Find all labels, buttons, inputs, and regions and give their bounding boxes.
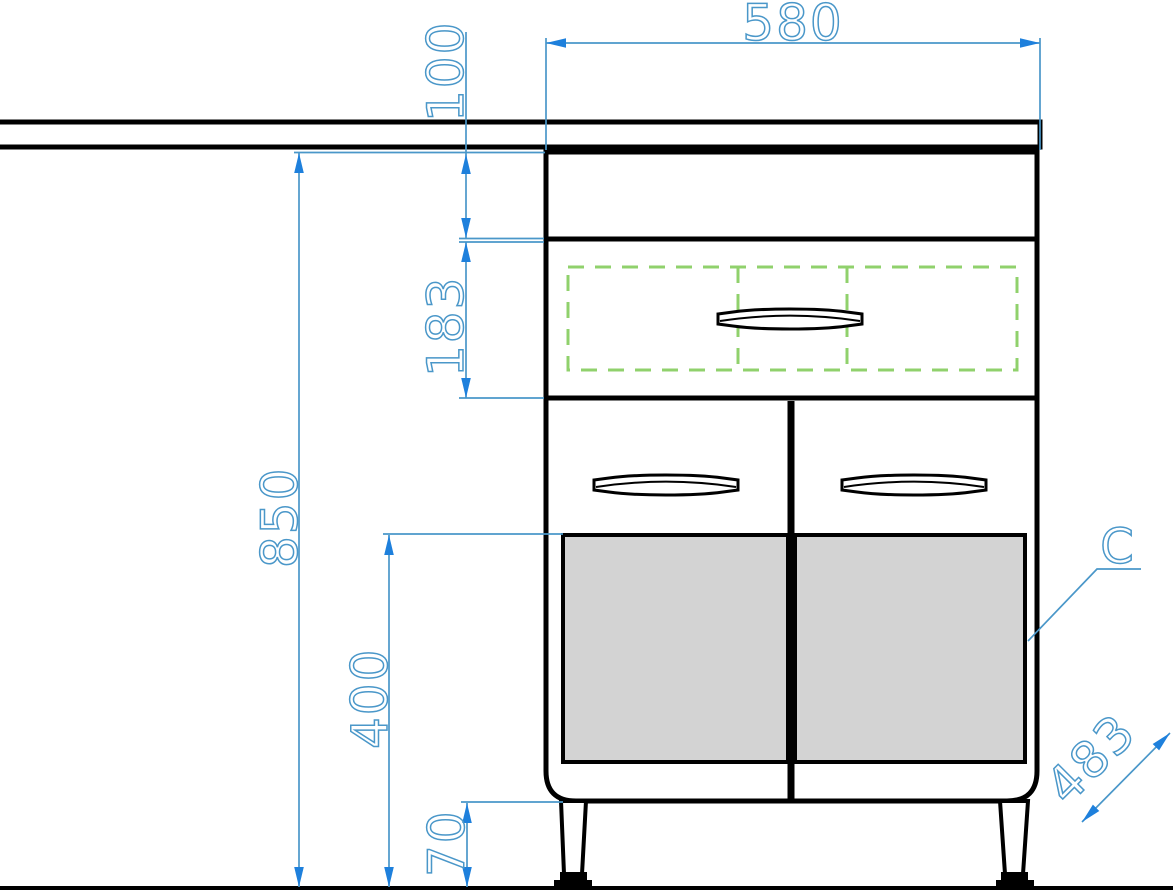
right-door-panel: [795, 535, 1025, 762]
right-door-handle: [842, 475, 986, 495]
drawer-handle: [718, 309, 862, 329]
dim-483-value: 483: [1035, 703, 1148, 816]
cabinet-elevation-drawing: 580 100 183 850 400 70: [0, 0, 1173, 895]
dim-183-value: 183: [417, 276, 475, 377]
dim-400-arrow-up: [384, 535, 394, 555]
dimension-overall-height-850: 850: [251, 153, 309, 887]
dim-70-value: 70: [418, 809, 476, 877]
technical-drawing-canvas: 580 100 183 850 400 70: [0, 0, 1173, 895]
left-leg: [561, 801, 586, 874]
right-foot-upper: [1001, 872, 1028, 880]
dim-580-value: 580: [742, 0, 843, 52]
dim-100-arrow-down: [461, 218, 471, 238]
dim-580-arrow-right: [1020, 38, 1040, 48]
dim-183-arrow-down: [461, 378, 471, 398]
left-door-handle: [594, 475, 738, 495]
left-foot-upper: [560, 872, 587, 880]
dim-100-value: 100: [417, 21, 475, 122]
dim-100-arrow-up: [461, 154, 471, 174]
dim-400-arrow-down: [384, 867, 394, 887]
dim-183-arrow-up: [461, 242, 471, 262]
dimension-drawer-183: 183: [417, 242, 544, 398]
label-c-text: C: [1100, 519, 1134, 575]
dimension-leg-70: 70: [418, 802, 563, 887]
dimension-depth-483: 483: [1035, 703, 1170, 822]
section-label-c: C: [1028, 519, 1141, 641]
dim-400-value: 400: [341, 648, 399, 749]
dim-850-value: 850: [251, 467, 309, 568]
countertop: [0, 122, 1040, 147]
right-leg: [1000, 801, 1028, 874]
dim-580-arrow-left: [546, 38, 566, 48]
dim-850-arrow-down: [294, 867, 304, 887]
label-c-leader: [1028, 569, 1141, 641]
dim-850-arrow-up: [294, 153, 304, 173]
left-door-panel: [563, 535, 788, 762]
